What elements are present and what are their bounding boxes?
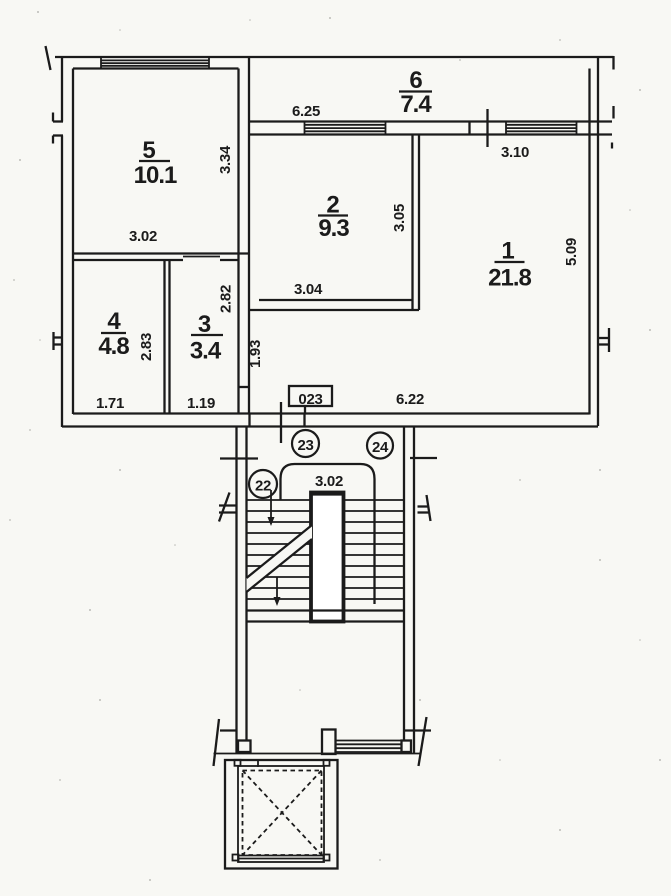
svg-text:6: 6 [409,67,422,94]
svg-text:5.09: 5.09 [563,238,580,266]
svg-text:9.3: 9.3 [318,215,349,242]
svg-text:1: 1 [501,238,514,265]
svg-text:3.02: 3.02 [315,473,343,490]
svg-text:2.82: 2.82 [218,285,235,313]
svg-text:6.22: 6.22 [396,391,424,408]
svg-text:7.4: 7.4 [400,91,432,118]
svg-text:3.34: 3.34 [217,145,234,174]
svg-text:6.25: 6.25 [292,103,320,120]
svg-text:1.71: 1.71 [96,395,124,412]
svg-text:3.02: 3.02 [129,228,157,245]
svg-text:1.19: 1.19 [187,395,215,412]
svg-text:3.04: 3.04 [294,281,323,298]
svg-text:3.05: 3.05 [391,204,408,232]
svg-text:3.10: 3.10 [501,144,529,161]
svg-text:22: 22 [255,478,271,495]
svg-text:4.8: 4.8 [98,333,129,360]
svg-text:1.93: 1.93 [247,340,264,368]
svg-text:10.1: 10.1 [134,162,177,189]
svg-text:3.4: 3.4 [190,338,222,365]
svg-text:4: 4 [107,308,121,335]
svg-text:24: 24 [372,439,389,456]
svg-text:21.8: 21.8 [488,265,531,292]
svg-text:23: 23 [297,437,313,454]
svg-text:023: 023 [298,391,322,408]
svg-text:2.83: 2.83 [138,333,155,361]
